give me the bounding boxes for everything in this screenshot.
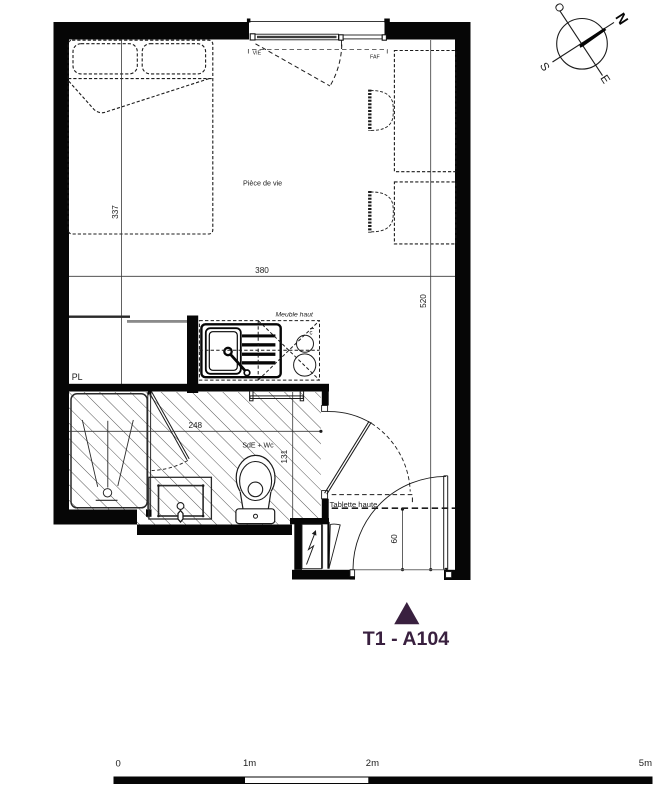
svg-text:Pièce de vie: Pièce de vie bbox=[243, 179, 282, 188]
svg-text:0: 0 bbox=[116, 759, 121, 770]
svg-text:Meuble haut: Meuble haut bbox=[276, 312, 315, 319]
svg-text:60: 60 bbox=[390, 534, 399, 544]
svg-text:PL: PL bbox=[72, 372, 83, 382]
svg-text:FAF: FAF bbox=[370, 54, 380, 60]
svg-text:1m: 1m bbox=[243, 758, 256, 769]
svg-text:248: 248 bbox=[188, 421, 202, 430]
svg-text:5m: 5m bbox=[639, 758, 652, 769]
svg-text:337: 337 bbox=[111, 205, 120, 219]
svg-text:380: 380 bbox=[255, 266, 269, 275]
svg-text:T1 - A104: T1 - A104 bbox=[363, 628, 449, 650]
svg-text:SdE + Wc: SdE + Wc bbox=[242, 443, 274, 450]
svg-text:VIE: VIE bbox=[253, 50, 262, 56]
svg-text:131: 131 bbox=[280, 449, 289, 463]
svg-text:520: 520 bbox=[419, 294, 428, 308]
svg-text:2m: 2m bbox=[366, 758, 379, 769]
svg-text:c: c bbox=[310, 331, 313, 337]
svg-text:Tablette haute: Tablette haute bbox=[330, 500, 378, 509]
